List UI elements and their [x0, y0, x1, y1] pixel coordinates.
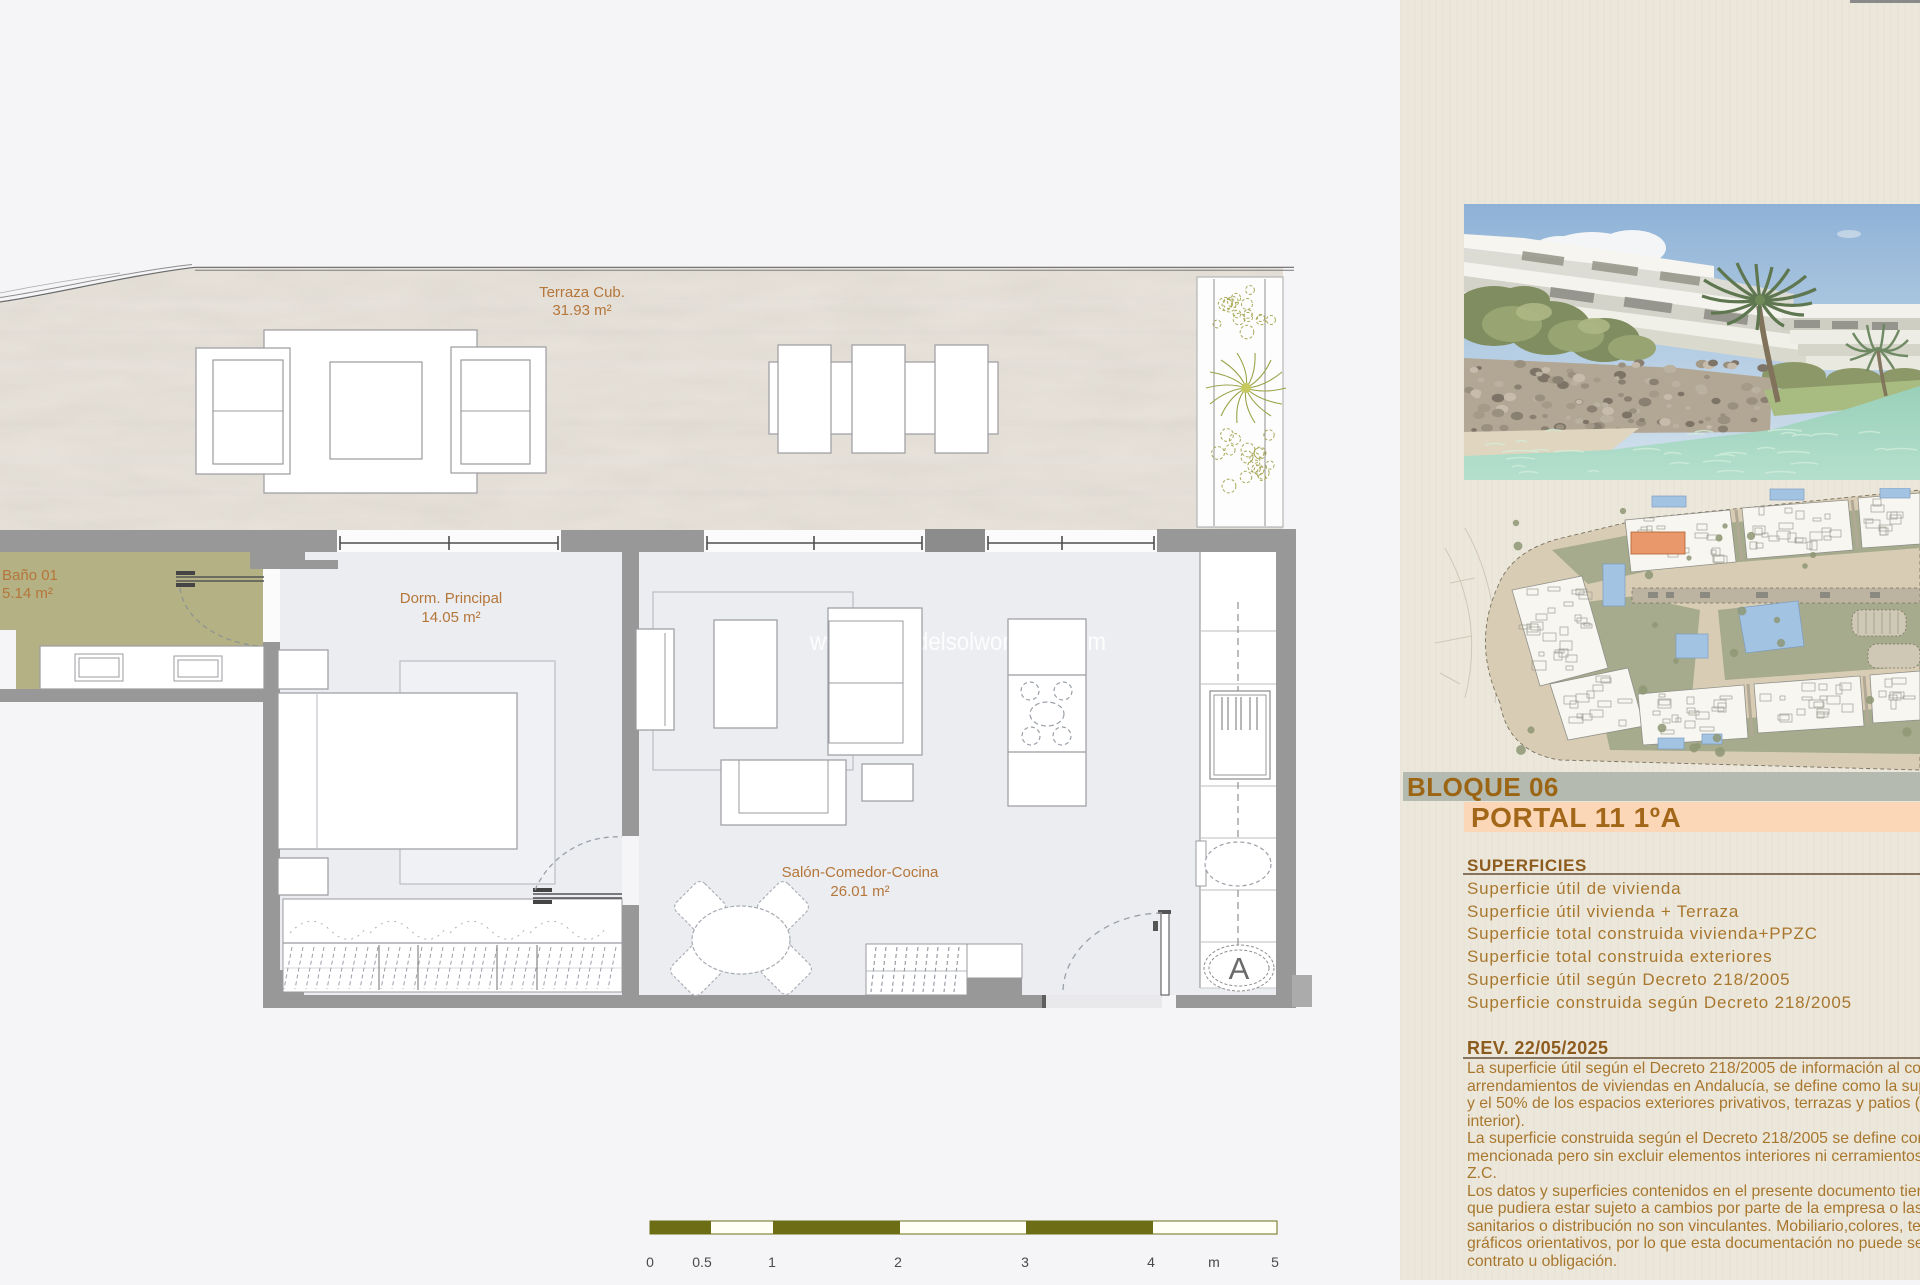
svg-text:26.01 m²: 26.01 m²: [830, 883, 889, 900]
svg-text:Terraza Cub.: Terraza Cub.: [539, 284, 625, 301]
svg-text:m: m: [1208, 1254, 1220, 1270]
svg-text:Dorm. Principal: Dorm. Principal: [400, 590, 503, 607]
svg-text:Baño 01: Baño 01: [2, 567, 58, 584]
svg-text:1: 1: [768, 1254, 776, 1270]
svg-text:Salón-Comedor-Cocina: Salón-Comedor-Cocina: [782, 864, 939, 881]
svg-text:0: 0: [646, 1254, 654, 1270]
svg-text:3: 3: [1021, 1254, 1029, 1270]
svg-text:0.5: 0.5: [692, 1254, 712, 1270]
svg-text:5: 5: [1271, 1254, 1279, 1270]
svg-text:31.93 m²: 31.93 m²: [552, 302, 611, 319]
svg-text:5.14 m²: 5.14 m²: [2, 585, 53, 602]
svg-text:4: 4: [1147, 1254, 1155, 1270]
svg-text:2: 2: [894, 1254, 902, 1270]
svg-text:A: A: [1229, 951, 1250, 986]
svg-text:14.05 m²: 14.05 m²: [421, 609, 480, 626]
